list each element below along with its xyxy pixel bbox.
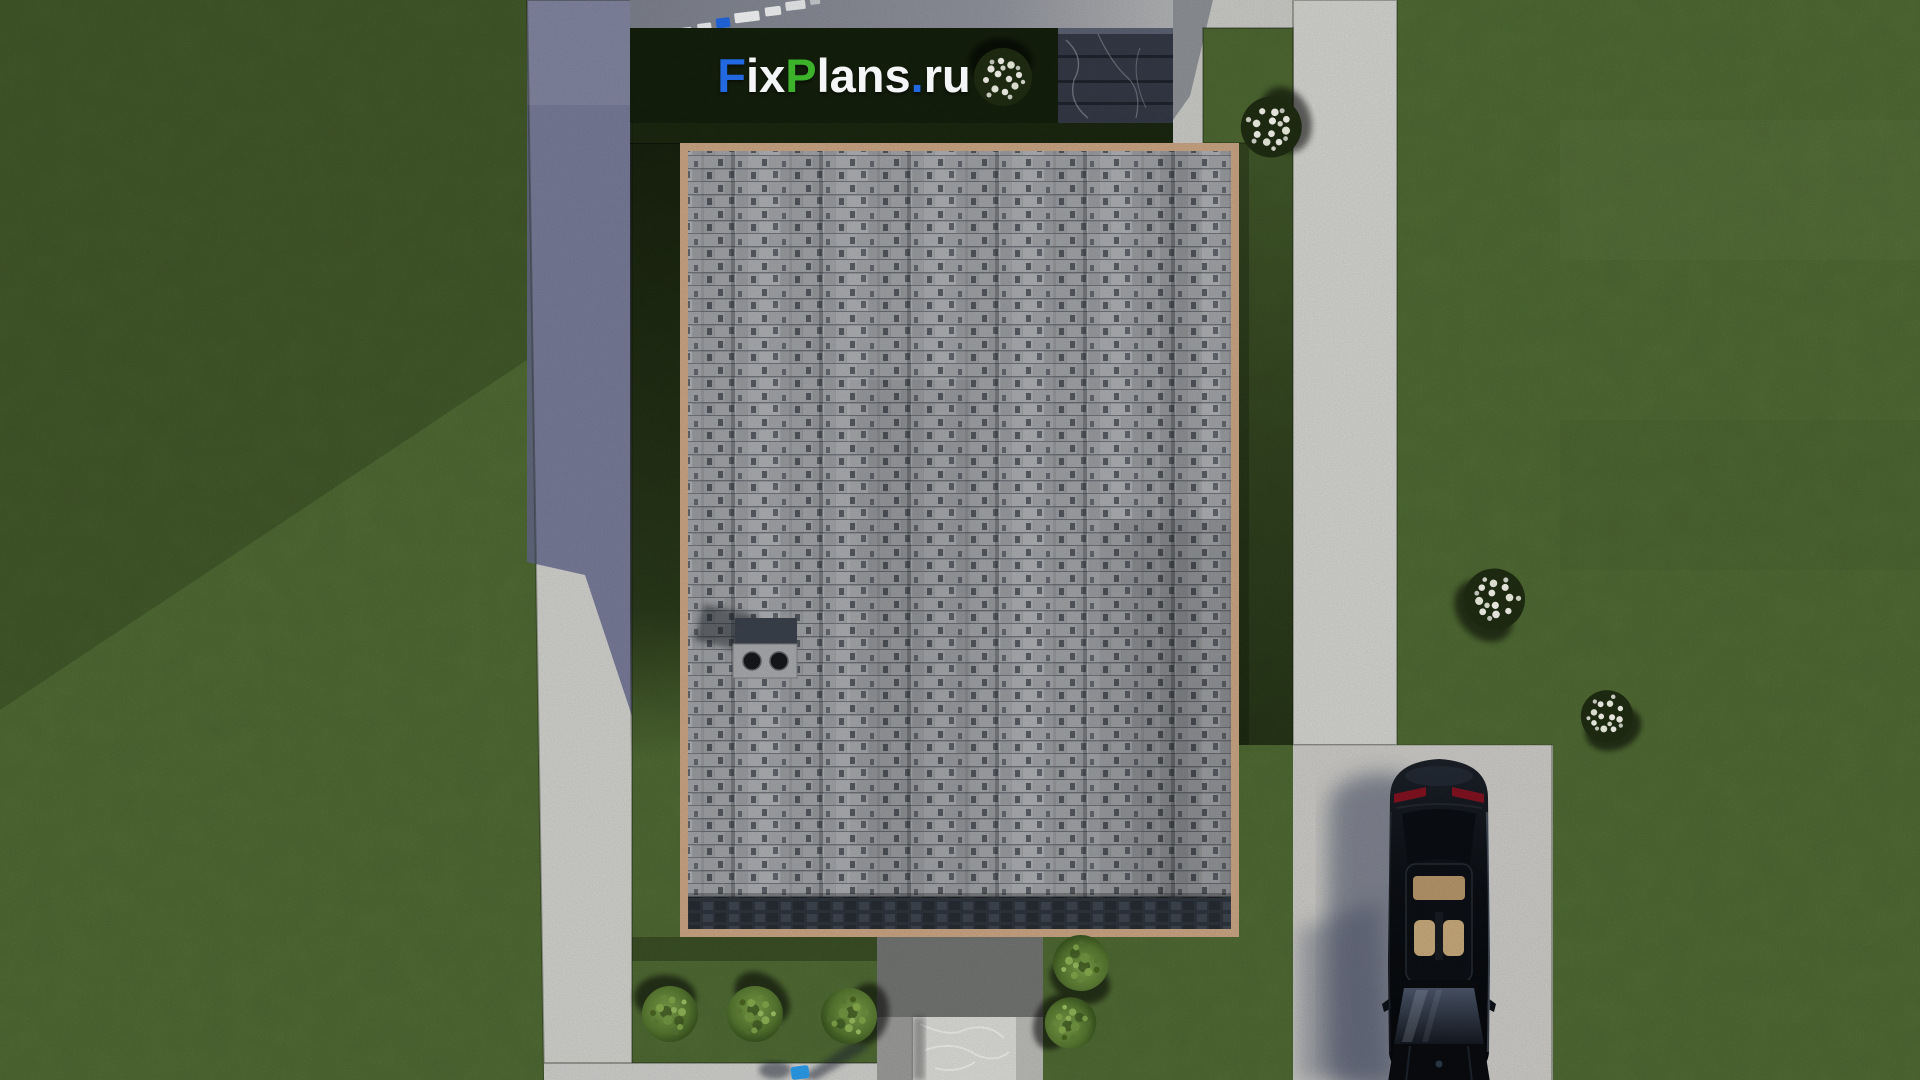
site-plan-render: FixPlans.ru	[0, 0, 1920, 1080]
grain-overlay	[0, 0, 1920, 1080]
scene-canvas	[0, 0, 1920, 1080]
